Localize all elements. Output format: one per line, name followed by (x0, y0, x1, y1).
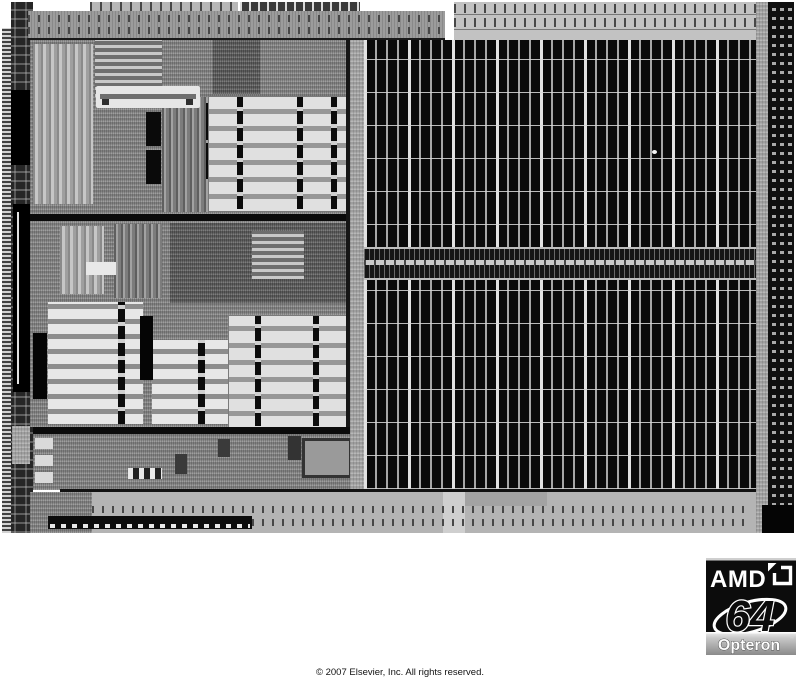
pad-tick-row (28, 15, 445, 22)
amd64-opteron-logo: AMD 64 Opteron ™ (706, 558, 796, 655)
band-edge-line (364, 278, 756, 280)
right-io-column (768, 2, 794, 533)
bottom-black-bar (48, 516, 252, 529)
white-macro-small (86, 262, 116, 275)
left-io-black-bar-2 (13, 204, 31, 392)
small-dark-block (218, 439, 230, 457)
array-slot-column (118, 302, 125, 424)
array-slot-column (237, 97, 243, 209)
small-dark-block (288, 436, 301, 460)
band-edge-line (364, 247, 756, 249)
top-pad-band-right (454, 2, 756, 40)
pad-tick-row (454, 18, 756, 27)
logic-column-block (114, 224, 162, 298)
macro-center-band (100, 94, 196, 99)
figure-page: AMD 64 Opteron ™ © 2007 Elsevier, Inc. A… (0, 0, 800, 684)
core-divider-bar (33, 427, 363, 434)
black-macro-bar (140, 316, 153, 380)
sram-array-lower (228, 315, 354, 429)
die-photo (2, 2, 794, 533)
band-center-line (364, 260, 756, 265)
array-slot-column (297, 97, 303, 209)
cache-center-band (364, 247, 756, 280)
opteron-band-highlight (706, 632, 796, 634)
pad-tick-row (28, 27, 445, 34)
logo-top-highlight (706, 558, 796, 561)
black-macro-bar (146, 150, 161, 184)
bright-defect-dot (652, 150, 657, 154)
connector-pill-row (128, 468, 162, 479)
trademark-symbol: ™ (789, 636, 794, 642)
white-macro-block (96, 86, 200, 108)
right-decoder-column (756, 2, 768, 533)
left-pad-ruler (2, 28, 11, 533)
framed-macro-block (302, 438, 352, 478)
macro-pin (186, 99, 193, 105)
core-divider-bar (30, 214, 360, 221)
logic-column-block (33, 44, 93, 204)
array-slot-column (255, 316, 261, 426)
black-macro-bar (146, 112, 161, 146)
logo-brand-text: AMD (710, 566, 766, 593)
pad-row-line (454, 14, 756, 15)
logo-product-text: Opteron (718, 637, 780, 654)
logic-column-block (60, 226, 104, 294)
array-slot-column (331, 97, 337, 209)
logic-column-block (162, 97, 208, 212)
bottom-bar-dashes (50, 524, 250, 528)
io-pill (35, 472, 53, 483)
small-dark-block (175, 454, 187, 474)
striped-unit-block (252, 231, 304, 279)
left-io-black-bar-1 (11, 90, 31, 165)
left-io-white-line (17, 212, 19, 384)
io-pill (35, 455, 53, 466)
pad-tick-row (454, 4, 756, 13)
array-slot-column (313, 316, 319, 426)
sram-macro-field (48, 302, 143, 424)
macro-pin (102, 99, 109, 105)
top-edge-strip-dark (240, 2, 360, 11)
top-pad-band-left (28, 11, 445, 40)
right-corner-black (762, 505, 794, 533)
io-pill (35, 438, 53, 449)
copyright-line: © 2007 Elsevier, Inc. All rights reserve… (0, 667, 800, 678)
pad-row-line (454, 29, 756, 30)
plain-panel (465, 492, 547, 506)
pad-tick-row (92, 506, 752, 513)
left-io-light-block (12, 426, 30, 464)
black-macro-bar (33, 333, 47, 399)
dense-logic-block (213, 40, 260, 94)
sram-macro-field (152, 340, 232, 424)
sram-array-upper (208, 96, 348, 212)
array-slot-column (198, 340, 205, 424)
